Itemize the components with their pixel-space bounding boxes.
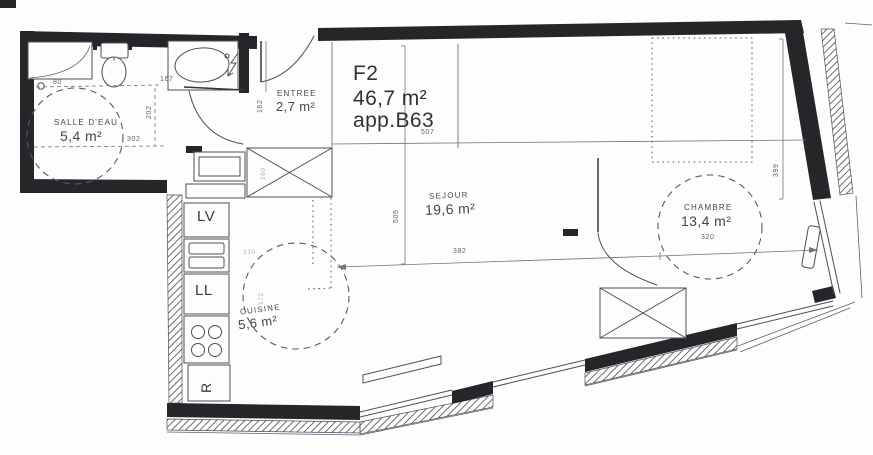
- washbasin-icon: [168, 41, 238, 90]
- dim-202: 202: [146, 106, 153, 119]
- plan-type-label: F2: [353, 63, 378, 84]
- dim-507: 507: [421, 129, 434, 136]
- room-label-entree: ENTREE: [277, 90, 317, 98]
- toilet-icon: [101, 43, 128, 87]
- fridge-label: R: [199, 382, 213, 393]
- plan-total-area-label: 46,7 m²: [353, 88, 427, 109]
- exterior-hatching: [167, 29, 853, 434]
- room-area-entree: 2,7 m²: [276, 100, 315, 113]
- bed-outline: [652, 38, 752, 162]
- dim-160: 160: [261, 167, 268, 180]
- room-label-chambre: CHAMBRE: [684, 204, 732, 212]
- floor-plan-drawing: [0, 0, 873, 455]
- vanity-counter: [28, 42, 92, 79]
- room-area-sejour: 19,6 m²: [425, 201, 476, 217]
- dim-399: 399: [773, 164, 780, 177]
- dim-circle-marker: [38, 83, 44, 89]
- dim-382: 382: [453, 248, 466, 255]
- dishwasher-label: LV: [197, 209, 215, 224]
- dim-172: 172: [259, 292, 266, 305]
- washer-label: LL: [195, 283, 213, 298]
- kitchen-run: [184, 203, 230, 401]
- room-area-chambre: 13,4 m²: [681, 214, 731, 228]
- cooktop-icon: [184, 316, 229, 363]
- room-area-salle-deau: 5,4 m²: [60, 129, 102, 143]
- entry-door: [261, 36, 314, 82]
- kitchen-sink-icon: [184, 239, 229, 272]
- room-label-sejour: SEJOUR: [429, 191, 469, 200]
- dim-167: 167: [160, 76, 173, 83]
- dim-162: 162: [257, 100, 264, 113]
- bedroom-door: [598, 158, 657, 285]
- dim-505: 505: [393, 210, 400, 223]
- dim-80: 80: [53, 79, 62, 86]
- bathroom-door: [184, 87, 243, 144]
- dim-302: 302: [127, 136, 140, 143]
- apartment-number-label: app.B63: [353, 110, 434, 131]
- room-label-salle-deau: SALLE D'EAU: [54, 119, 118, 127]
- shaft-cross-box-2: [600, 288, 686, 338]
- dim-210: 210: [243, 250, 256, 257]
- dim-320: 320: [701, 234, 714, 241]
- floor-plan: F2 46,7 m² app.B63 SALLE D'EAU 5,4 m² EN…: [0, 0, 873, 455]
